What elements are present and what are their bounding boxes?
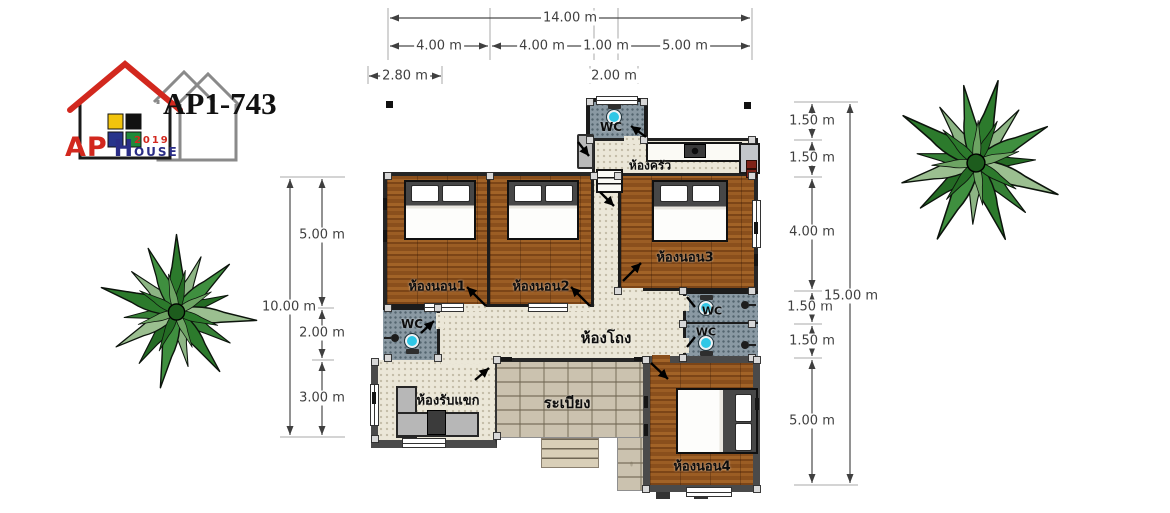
tree-left <box>84 222 269 402</box>
label-bedroom3: ห้องนอน3 <box>656 247 713 268</box>
curtain-mark <box>383 230 387 242</box>
brand-text: APH2019OUSE <box>65 132 179 163</box>
curtain-mark <box>644 396 648 408</box>
door-opening-bedroom4 <box>652 355 670 364</box>
door-opening-wc-upper <box>682 296 689 311</box>
curtain-mark <box>754 254 758 266</box>
door-opening-bedroom1 <box>464 304 486 311</box>
dim-right-total: 15.00 m <box>822 289 880 304</box>
bed-bedroom4 <box>676 388 758 454</box>
door-opening-wc-top <box>624 136 642 144</box>
bed-bedroom2 <box>507 180 579 240</box>
dim-left-seg2: 2.00 m <box>297 326 347 341</box>
window-bedroom2 <box>528 303 568 312</box>
dim-right-seg2: 1.50 m <box>787 151 837 166</box>
door-opening-wc-left <box>436 313 444 329</box>
window-bedroom1 <box>424 303 464 312</box>
sink-wc-upper <box>741 301 749 309</box>
dim-left-seg3: 3.00 m <box>297 391 347 406</box>
entry-step <box>656 492 670 499</box>
pillow <box>735 423 752 451</box>
dim-right-seg1: 1.50 m <box>787 114 837 129</box>
washing-machine <box>577 134 594 169</box>
dim-left-total: 10.00 m <box>260 300 318 315</box>
wall-opening-living <box>441 356 495 364</box>
kitchen-appliance <box>746 169 757 178</box>
terrace-steps <box>541 438 599 468</box>
brand-ap: AP <box>65 132 108 163</box>
window-living-left <box>370 384 379 426</box>
label-wc-lower: WC <box>696 326 716 339</box>
dim-offset-1: 2.80 m <box>380 69 430 84</box>
label-terrace: ระเบียง <box>544 391 591 415</box>
sofa-table <box>427 410 446 435</box>
tree-leaves <box>876 64 1076 262</box>
label-living: ห้องรับแขก <box>416 390 479 411</box>
sink-wc-left <box>391 334 399 342</box>
toilet-wc-left <box>405 334 419 354</box>
toilet-wc-lower <box>699 336 713 356</box>
floor-plan-page: APH2019OUSE AP1-743 <box>0 0 1170 513</box>
toilet-tank <box>700 295 713 300</box>
curtain-mark <box>383 198 387 210</box>
dim-top-total: 14.00 m <box>541 11 599 26</box>
label-wc-top: WC <box>600 120 622 134</box>
toilet-tank <box>406 349 419 354</box>
terrace-walkway <box>617 438 645 491</box>
curtain-mark <box>644 424 648 436</box>
door-opening-bedroom3 <box>621 288 643 295</box>
bed-bedroom3 <box>652 180 728 242</box>
curtain-mark <box>372 392 376 404</box>
pillow <box>692 185 720 202</box>
hall-cabinet <box>596 169 623 193</box>
pillow <box>411 185 439 202</box>
tree-right <box>876 64 1076 262</box>
tree-leaves <box>99 235 257 390</box>
pillow <box>545 185 573 202</box>
toilet-tank <box>608 104 621 109</box>
window-bedroom4 <box>686 487 732 497</box>
door-opening-bedroom2 <box>568 304 590 311</box>
window-living-bottom <box>402 438 446 448</box>
dim-top-seg1: 4.00 m <box>414 39 464 54</box>
dim-left-seg1: 5.00 m <box>297 228 347 243</box>
dim-top-seg4: 5.00 m <box>660 39 710 54</box>
dim-offset-2: 2.00 m <box>589 69 639 84</box>
dim-top-seg2: 4.00 m <box>517 39 567 54</box>
dim-right-seg5: 1.50 m <box>787 334 837 349</box>
label-wc-left: WC <box>401 317 423 331</box>
bed-bedroom1 <box>404 180 476 240</box>
curtain-mark <box>755 398 759 410</box>
label-bedroom4: ห้องนอน4 <box>673 456 730 477</box>
site-dots <box>386 101 751 109</box>
kitchen-stove <box>684 144 706 158</box>
dim-top-seg3: 1.00 m <box>581 39 631 54</box>
kitchen-appliance <box>746 160 757 169</box>
pillow <box>735 394 752 422</box>
dim-right-seg6: 5.00 m <box>787 414 837 429</box>
pillow <box>514 185 542 202</box>
model-number: AP1-743 <box>163 86 277 122</box>
label-bedroom2: ห้องนอน2 <box>512 276 569 297</box>
label-hall: ห้องโถง <box>581 326 632 350</box>
wall-mark <box>500 357 512 361</box>
door-opening-wc-lower <box>682 338 689 353</box>
toilet-bowl <box>405 334 419 348</box>
wall-mark <box>634 357 646 361</box>
label-kitchen: ห้องครัว <box>629 157 671 176</box>
curtain-mark <box>754 222 758 234</box>
label-bedroom1: ห้องนอน1 <box>408 276 465 297</box>
toilet-tank <box>700 351 713 356</box>
label-wc-upper: WC <box>702 305 722 318</box>
dim-right-seg3: 4.00 m <box>787 225 837 240</box>
sink-wc-lower <box>741 341 749 349</box>
pillow <box>442 185 470 202</box>
pillow <box>660 185 688 202</box>
brand-house-initial: H <box>114 136 133 162</box>
brand-house-tail: OUSE <box>134 146 179 158</box>
